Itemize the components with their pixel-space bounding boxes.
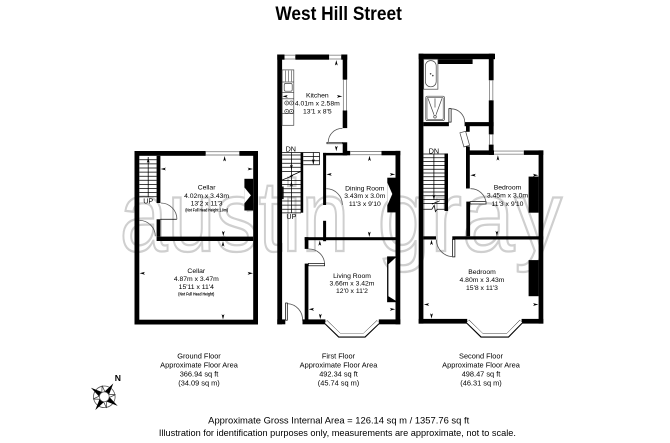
- svg-text:Approximate Floor Area: Approximate Floor Area: [442, 361, 521, 370]
- svg-text:498.47 sq ft: 498.47 sq ft: [462, 370, 501, 379]
- svg-text:4.02m x 3.43m: 4.02m x 3.43m: [184, 193, 229, 200]
- svg-text:11'3 x 9'10: 11'3 x 9'10: [349, 201, 381, 208]
- svg-text:First Floor: First Floor: [322, 352, 356, 361]
- svg-text:(46.31 sq m): (46.31 sq m): [460, 379, 502, 388]
- svg-text:12'0 x 11'2: 12'0 x 11'2: [336, 288, 368, 295]
- svg-text:Illustration for identificatio: Illustration for identification purposes…: [159, 428, 516, 438]
- svg-text:Bedroom: Bedroom: [468, 269, 496, 276]
- svg-text:Kitchen: Kitchen: [306, 93, 329, 100]
- svg-text:Dining Room: Dining Room: [345, 186, 385, 193]
- svg-text:3.45m x 3.0m: 3.45m x 3.0m: [487, 193, 529, 200]
- svg-text:Bedroom: Bedroom: [494, 184, 522, 191]
- svg-text:(Not Full Head Height): (Not Full Head Height): [178, 291, 214, 296]
- svg-text:Cellar: Cellar: [198, 185, 216, 192]
- svg-text:N: N: [115, 373, 121, 383]
- svg-text:UP: UP: [143, 197, 153, 206]
- svg-text:4.01m x 2.58m: 4.01m x 2.58m: [295, 101, 340, 108]
- svg-text:3.66m x 3.42m: 3.66m x 3.42m: [330, 281, 375, 288]
- svg-text:Approximate Floor Area: Approximate Floor Area: [160, 361, 239, 370]
- svg-text:4.87m x 3.47m: 4.87m x 3.47m: [174, 276, 219, 283]
- svg-text:UP: UP: [286, 212, 296, 221]
- svg-text:15'11 x 11'4: 15'11 x 11'4: [179, 284, 214, 291]
- svg-text:3.43m x 3.0m: 3.43m x 3.0m: [344, 193, 386, 200]
- svg-text:366.94 sq ft: 366.94 sq ft: [180, 370, 219, 379]
- svg-text:Ground Floor: Ground Floor: [177, 352, 221, 361]
- svg-text:15'8 x 11'3: 15'8 x 11'3: [466, 285, 498, 292]
- svg-text:13'1 x 8'5: 13'1 x 8'5: [303, 109, 332, 116]
- svg-text:West Hill Street: West Hill Street: [275, 3, 402, 25]
- svg-text:Cellar: Cellar: [187, 268, 205, 275]
- svg-text:austin: austin: [120, 161, 350, 273]
- svg-text:11'3 x 9'10: 11'3 x 9'10: [492, 201, 524, 208]
- svg-text:4.80m x 3.43m: 4.80m x 3.43m: [460, 277, 505, 284]
- svg-text:Approximate Floor Area: Approximate Floor Area: [300, 361, 379, 370]
- svg-text:Living Room: Living Room: [333, 273, 371, 280]
- svg-text:492.34 sq ft: 492.34 sq ft: [319, 370, 358, 379]
- svg-text:(45.74 sq m): (45.74 sq m): [318, 379, 360, 388]
- svg-text:Second Floor: Second Floor: [459, 352, 503, 361]
- svg-text:Approximate Gross Internal Are: Approximate Gross Internal Area = 126.14…: [208, 416, 469, 426]
- svg-text:(34.09 sq m): (34.09 sq m): [178, 379, 220, 388]
- svg-text:(Not Full Head Height 1.9m): (Not Full Head Height 1.9m): [185, 207, 228, 212]
